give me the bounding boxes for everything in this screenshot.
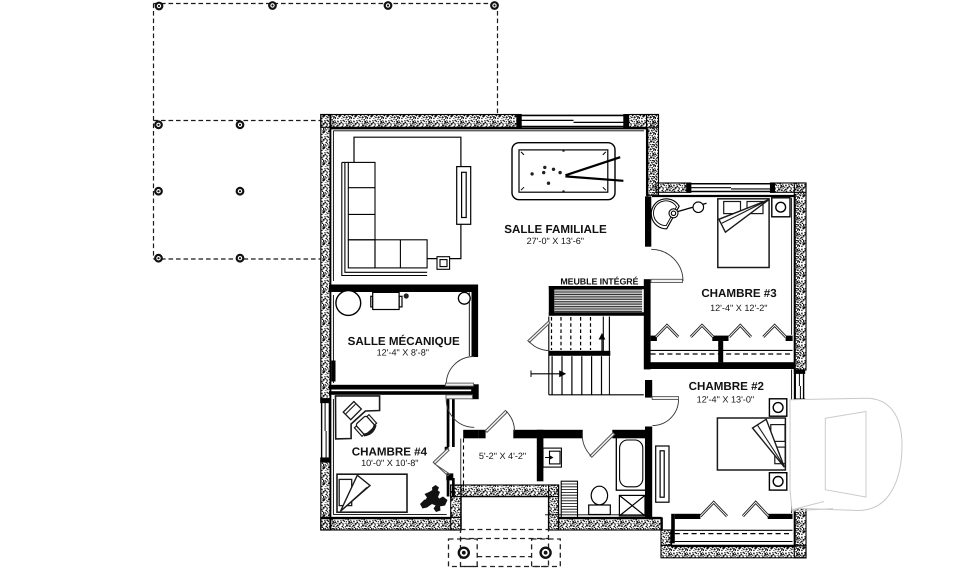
- svg-text:12'-4" X 8'-8": 12'-4" X 8'-8": [377, 347, 429, 357]
- svg-text:CHAMBRE #2: CHAMBRE #2: [689, 380, 764, 393]
- svg-text:27'-0" X 13'-6": 27'-0" X 13'-6": [527, 236, 584, 246]
- svg-text:5'-2" X 4'-2": 5'-2" X 4'-2": [479, 451, 526, 461]
- svg-text:12'-4" X 13'-0": 12'-4" X 13'-0": [697, 395, 754, 405]
- svg-text:MEUBLE INTÉGRÉ: MEUBLE INTÉGRÉ: [560, 276, 638, 286]
- svg-text:10'-0" X 10'-8": 10'-0" X 10'-8": [361, 458, 418, 468]
- svg-text:CHAMBRE #4: CHAMBRE #4: [352, 445, 428, 458]
- svg-text:SALLE MÉCANIQUE: SALLE MÉCANIQUE: [348, 334, 460, 348]
- svg-text:12'-4" X 12'-2": 12'-4" X 12'-2": [710, 303, 767, 313]
- svg-text:SALLE FAMILIALE: SALLE FAMILIALE: [504, 223, 607, 236]
- svg-text:CHAMBRE #3: CHAMBRE #3: [701, 287, 777, 300]
